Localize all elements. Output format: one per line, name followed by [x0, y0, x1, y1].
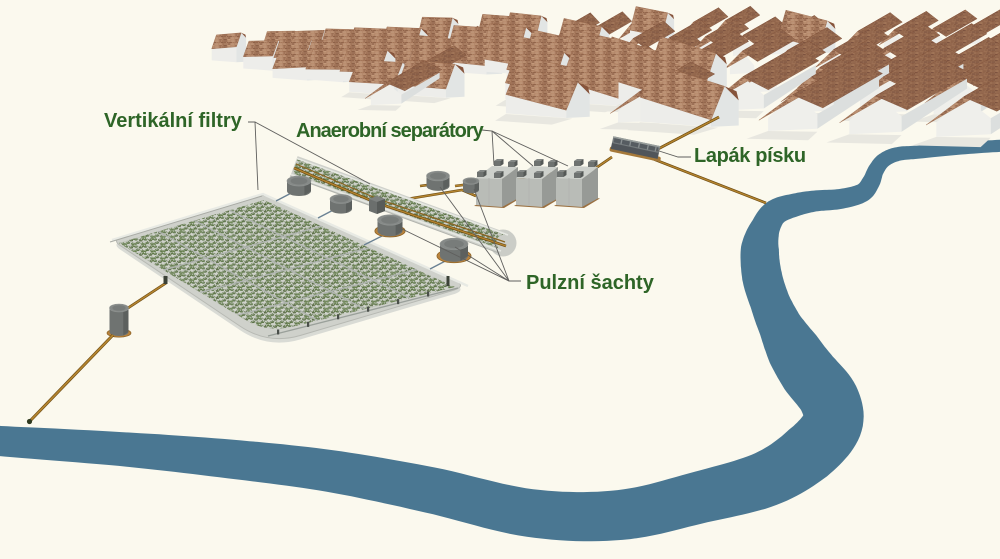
svg-text:Vertikální filtry: Vertikální filtry — [104, 110, 243, 132]
svg-text:Lapák písku: Lapák písku — [694, 145, 806, 167]
svg-text:Pulzní šachty: Pulzní šachty — [526, 272, 655, 294]
svg-text:Anaerobní separátory: Anaerobní separátory — [296, 120, 485, 142]
